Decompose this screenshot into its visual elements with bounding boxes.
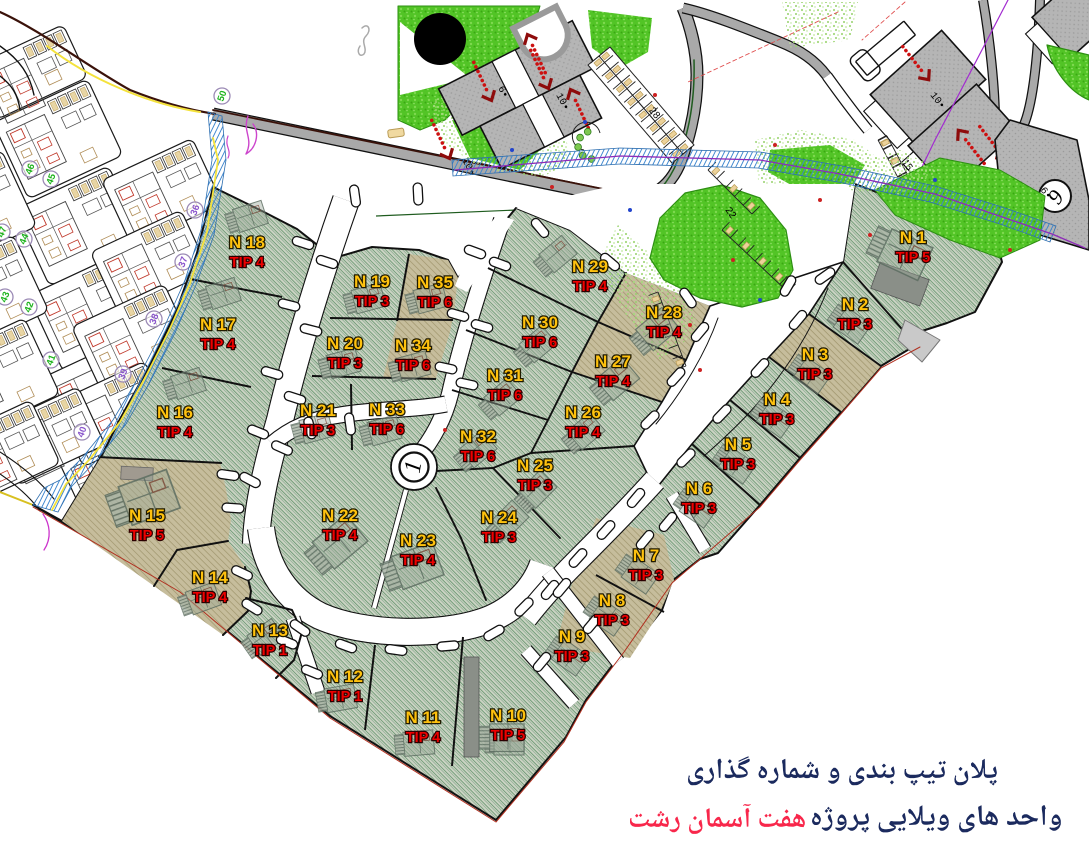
svg-text:N 25: N 25 — [517, 456, 553, 475]
svg-text:TIP 4: TIP 4 — [230, 255, 264, 271]
svg-text:N 35: N 35 — [417, 273, 453, 292]
svg-text:N 14: N 14 — [192, 568, 228, 587]
svg-text:TIP 3: TIP 3 — [482, 530, 516, 546]
svg-text:N 13: N 13 — [252, 621, 288, 640]
svg-text:N 34: N 34 — [395, 336, 431, 355]
svg-text:TIP 4: TIP 4 — [573, 279, 607, 295]
svg-text:TIP 3: TIP 3 — [629, 568, 663, 584]
svg-text:TIP 4: TIP 4 — [158, 425, 192, 441]
svg-text:TIP 6: TIP 6 — [461, 449, 495, 465]
svg-text:N 28: N 28 — [646, 303, 682, 322]
svg-text:TIP 4: TIP 4 — [596, 374, 630, 390]
svg-text:TIP 3: TIP 3 — [355, 294, 389, 310]
svg-text:N 32: N 32 — [460, 427, 496, 446]
svg-text:TIP 1: TIP 1 — [253, 643, 287, 659]
svg-text:TIP 4: TIP 4 — [566, 425, 600, 441]
svg-text:N 12: N 12 — [327, 667, 363, 686]
svg-text:TIP 3: TIP 3 — [328, 356, 362, 372]
svg-text:TIP 3: TIP 3 — [301, 423, 335, 439]
svg-text:N 16: N 16 — [157, 403, 193, 422]
svg-text:N 18: N 18 — [229, 233, 265, 252]
svg-text:TIP 5: TIP 5 — [130, 528, 164, 544]
svg-text:N 1: N 1 — [900, 228, 926, 247]
svg-text:N 23: N 23 — [400, 531, 436, 550]
svg-text:TIP 6: TIP 6 — [418, 295, 452, 311]
svg-text:N 21: N 21 — [300, 401, 336, 420]
svg-text:TIP 4: TIP 4 — [401, 553, 435, 569]
svg-text:N 11: N 11 — [406, 708, 441, 727]
svg-text:TIP 4: TIP 4 — [406, 730, 440, 746]
svg-text:TIP 5: TIP 5 — [896, 250, 930, 266]
svg-text:N 4: N 4 — [764, 390, 791, 409]
svg-text:TIP 4: TIP 4 — [647, 325, 681, 341]
svg-text:TIP 6: TIP 6 — [523, 335, 557, 351]
svg-text:TIP 5: TIP 5 — [491, 728, 525, 744]
svg-text:TIP 4: TIP 4 — [323, 528, 357, 544]
svg-text:N 29: N 29 — [572, 257, 608, 276]
svg-text:TIP 6: TIP 6 — [370, 422, 404, 438]
svg-text:TIP 3: TIP 3 — [760, 412, 794, 428]
svg-text:N 31: N 31 — [487, 366, 523, 385]
svg-text:N 3: N 3 — [802, 345, 828, 364]
svg-text:N 9: N 9 — [559, 627, 585, 646]
svg-text:N 19: N 19 — [354, 272, 390, 291]
svg-text:TIP 3: TIP 3 — [682, 501, 716, 517]
svg-text:N 27: N 27 — [595, 352, 631, 371]
svg-text:TIP 6: TIP 6 — [396, 358, 430, 374]
svg-text:TIP 3: TIP 3 — [838, 317, 872, 333]
svg-text:TIP 1: TIP 1 — [328, 689, 362, 705]
svg-text:TIP 6: TIP 6 — [488, 388, 522, 404]
svg-text:N 7: N 7 — [633, 546, 659, 565]
svg-text:N 17: N 17 — [200, 315, 236, 334]
svg-text:TIP 3: TIP 3 — [798, 367, 832, 383]
svg-text:N 33: N 33 — [369, 400, 405, 419]
svg-text:N 20: N 20 — [327, 334, 363, 353]
svg-text:N 2: N 2 — [842, 295, 868, 314]
svg-text:N 22: N 22 — [322, 506, 358, 525]
svg-text:TIP 3: TIP 3 — [518, 478, 552, 494]
svg-text:N 6: N 6 — [686, 479, 712, 498]
svg-text:TIP 3: TIP 3 — [721, 457, 755, 473]
svg-text:TIP 4: TIP 4 — [201, 337, 235, 353]
svg-text:N 24: N 24 — [481, 508, 517, 527]
svg-text:TIP 3: TIP 3 — [555, 649, 589, 665]
svg-text:N 10: N 10 — [490, 706, 526, 725]
svg-text:TIP 3: TIP 3 — [595, 613, 629, 629]
svg-text:TIP 4: TIP 4 — [193, 590, 227, 606]
svg-text:N 15: N 15 — [129, 506, 165, 525]
svg-text:N 26: N 26 — [565, 403, 601, 422]
svg-text:N 5: N 5 — [725, 435, 751, 454]
svg-text:N 30: N 30 — [522, 313, 558, 332]
svg-text:N 8: N 8 — [599, 591, 625, 610]
